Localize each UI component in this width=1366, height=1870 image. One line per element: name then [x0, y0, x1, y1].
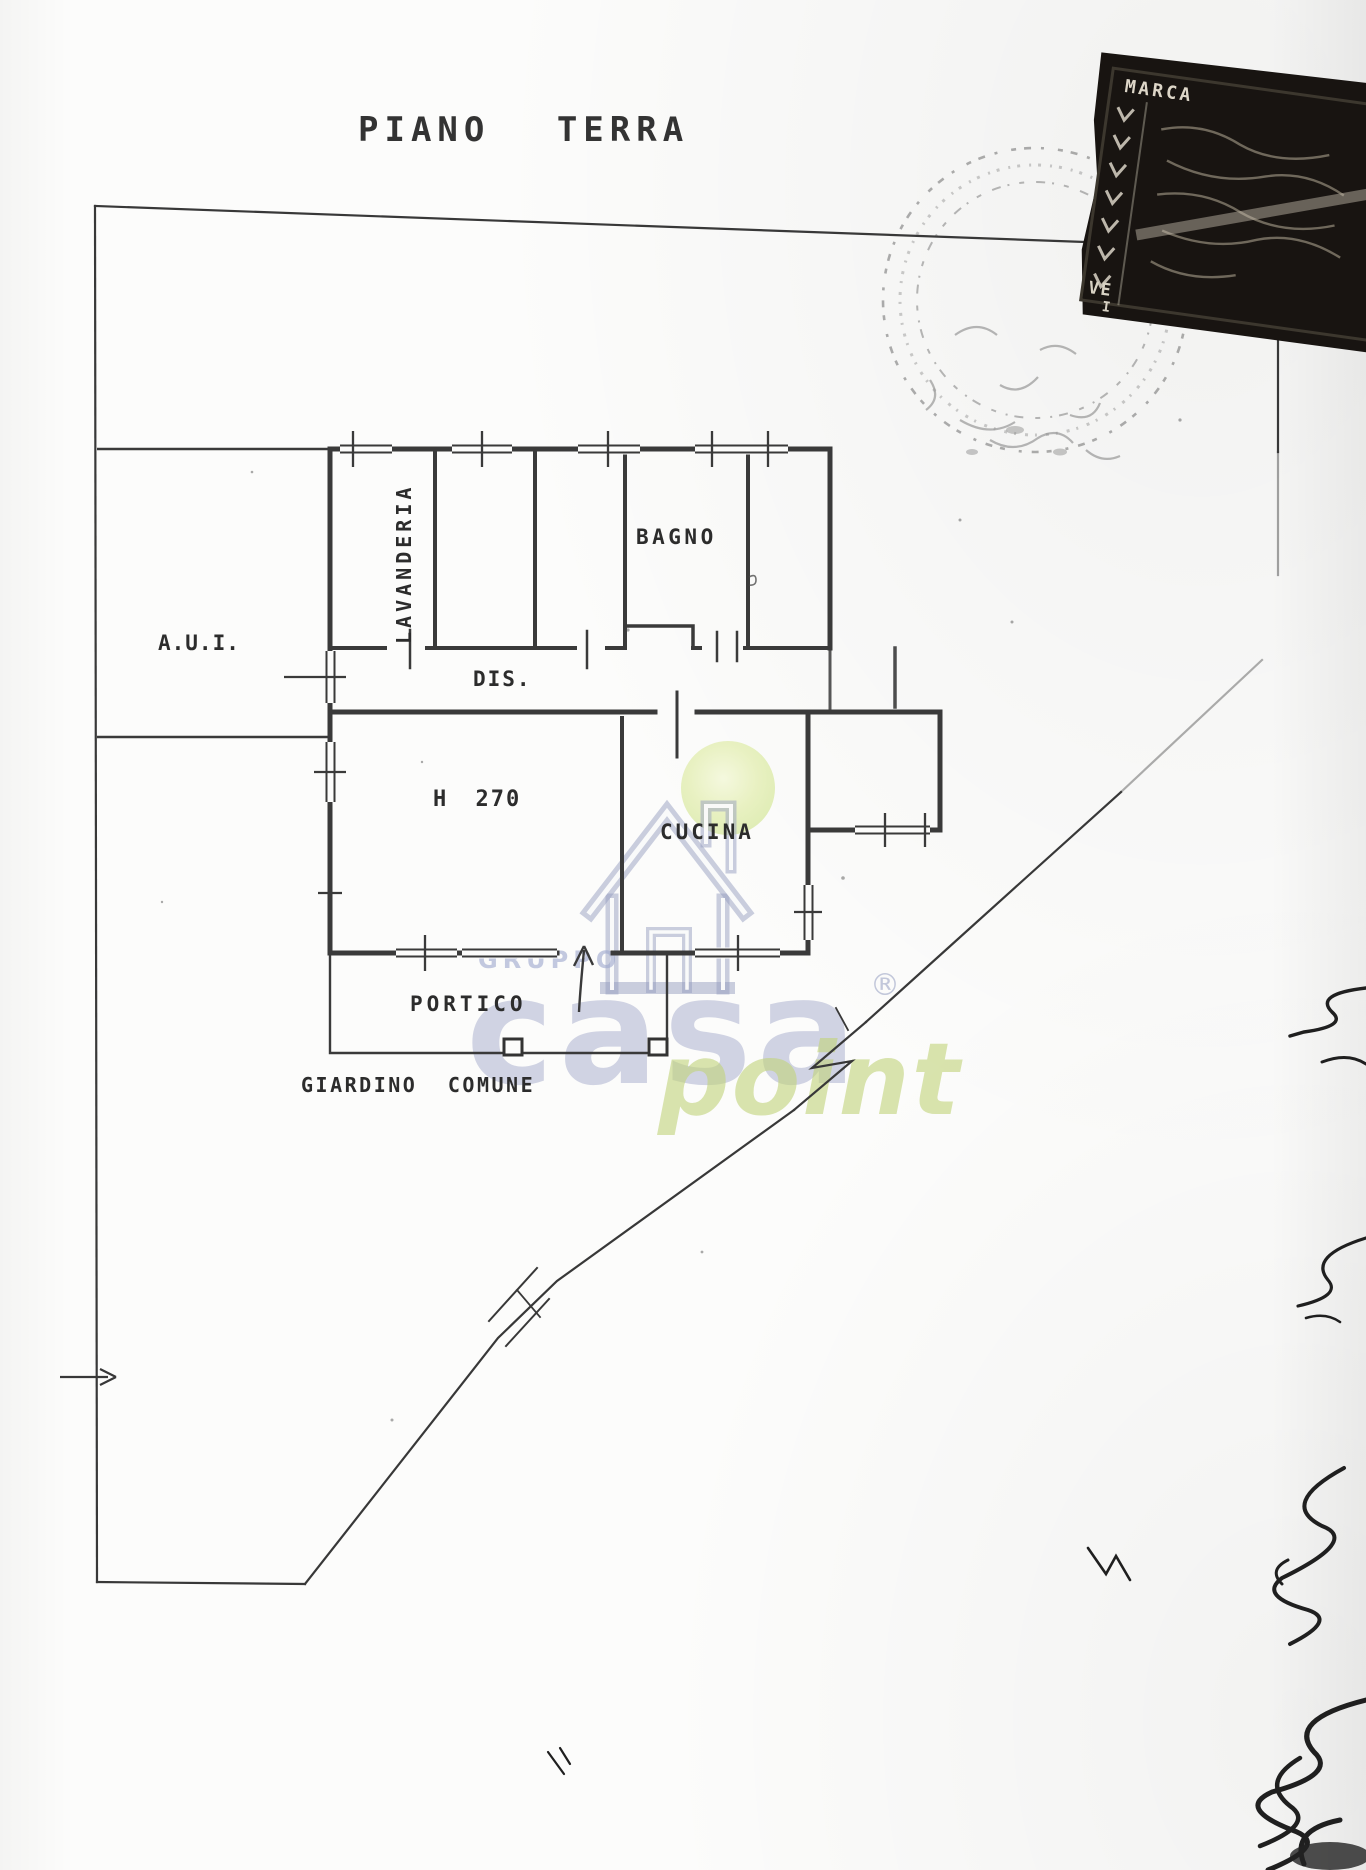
room-label-bagno: BAGNO — [636, 525, 717, 549]
room-label-dis: DIS. — [473, 667, 532, 691]
area-label-giardino-comune: GIARDINO COMUNE — [301, 1073, 535, 1097]
window-symbols — [284, 431, 930, 971]
entrance-arrow-icon — [574, 946, 593, 1012]
room-label-aui: A.U.I. — [158, 631, 240, 655]
boundary-arrow-icon — [60, 1369, 116, 1385]
property-boundary — [95, 206, 1278, 1584]
revenue-stamp: MARCA VE I — [1065, 44, 1366, 357]
pen-mark — [749, 576, 756, 586]
scanned-floor-plan-page: GRUPPO casa ® point — [0, 0, 1366, 1870]
room-label-cucina: CUCINA — [660, 820, 754, 844]
room-label-portico: PORTICO — [410, 992, 527, 1016]
page-title: PIANO TERRA — [358, 110, 689, 150]
revenue-stamp-text-ve: VE — [1087, 278, 1114, 301]
floor-plan-drawing: MARCA VE I — [0, 0, 1366, 1870]
scan-speckles — [161, 418, 1182, 1421]
edge-scribbles — [548, 988, 1366, 1870]
room-label-lavanderia: LAVANDERIA — [392, 484, 416, 644]
room-label-h270: H 270 — [433, 787, 521, 812]
building-walls — [330, 449, 940, 953]
aui-fence-lines — [97, 449, 330, 737]
